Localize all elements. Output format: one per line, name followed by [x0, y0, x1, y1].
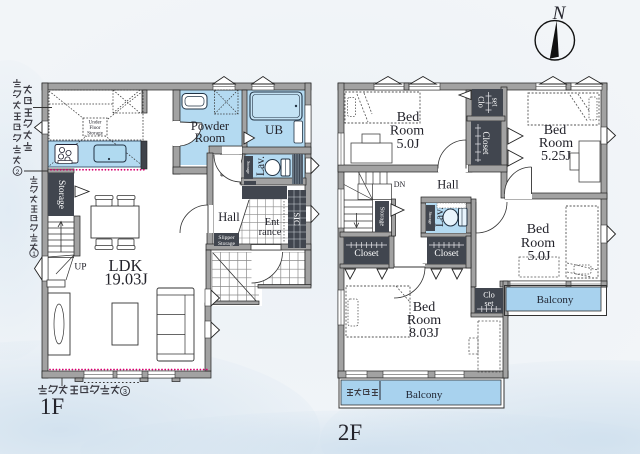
svg-text:Lav.: Lav.	[434, 207, 446, 227]
svg-text:8.03J: 8.03J	[409, 326, 440, 341]
svg-text:Storage: Storage	[246, 161, 251, 174]
svg-text:Closet: Closet	[481, 131, 491, 155]
svg-text:5.0J: 5.0J	[528, 249, 552, 264]
svg-text:N: N	[552, 3, 567, 24]
svg-text:3: 3	[123, 389, 127, 396]
svg-text:Storage: Storage	[87, 131, 104, 137]
svg-text:set: set	[491, 98, 500, 108]
svg-text:Storage: Storage	[56, 180, 66, 209]
svg-text:Storage: Storage	[428, 212, 433, 225]
svg-text:Clo: Clo	[477, 96, 486, 108]
svg-text:1F: 1F	[40, 394, 64, 419]
svg-text:19.03J: 19.03J	[104, 270, 148, 289]
svg-text:Lav.: Lav.	[255, 156, 267, 176]
svg-text:Hall: Hall	[218, 210, 240, 224]
svg-text:5.0J: 5.0J	[397, 137, 421, 152]
svg-text:DN: DN	[394, 180, 406, 189]
svg-text:5.25J: 5.25J	[541, 149, 572, 164]
svg-text:Balcony: Balcony	[537, 294, 574, 306]
svg-text:Balcony: Balcony	[406, 389, 443, 401]
svg-text:2: 2	[16, 169, 20, 176]
svg-text:Closet: Closet	[354, 249, 379, 259]
svg-text:SIC: SIC	[292, 212, 302, 226]
svg-text:2F: 2F	[338, 420, 362, 445]
svg-text:Room: Room	[195, 131, 226, 145]
svg-text:UP: UP	[74, 263, 86, 273]
svg-text:rance: rance	[259, 227, 282, 238]
svg-text:Closet: Closet	[434, 249, 459, 259]
svg-text:Storage: Storage	[379, 207, 386, 227]
svg-text:1: 1	[32, 251, 36, 258]
svg-text:set: set	[485, 299, 495, 308]
svg-text:Hall: Hall	[437, 178, 459, 192]
svg-text:Bed: Bed	[527, 222, 550, 237]
svg-text:Storage: Storage	[218, 241, 236, 247]
svg-text:UB: UB	[265, 122, 283, 137]
